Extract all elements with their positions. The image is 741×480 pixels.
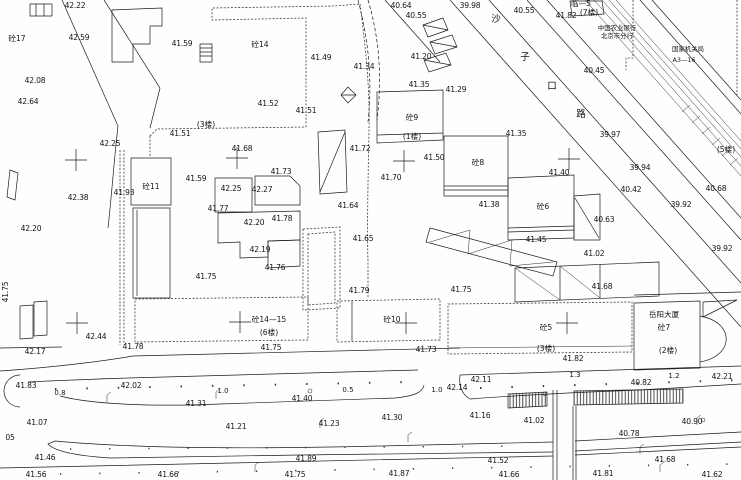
elevation-label: 40.82 <box>631 378 652 387</box>
elevation-label: 41.51 <box>170 129 191 138</box>
elevation-label: 41.52 <box>258 99 279 108</box>
elevation-label: 41.21 <box>226 422 247 431</box>
elevation-label: 42.25 <box>221 184 242 193</box>
building-u-dashed <box>303 227 340 310</box>
elevation-label: 41.75 <box>451 285 472 294</box>
elevation-label: 41.49 <box>311 53 332 62</box>
road-name-char: 口 <box>547 81 557 92</box>
elevation-label: 41.82 <box>563 354 584 363</box>
survey-map-canvas: 42.2242.5942.0842.6441.5941.4941.5241.51… <box>0 0 741 480</box>
elevation-labels: 42.2242.5942.0842.6441.5941.4941.5241.51… <box>5 1 732 479</box>
elevation-label: 41.50 <box>424 153 445 162</box>
elevation-label: 41.56 <box>26 470 47 479</box>
building-narrow <box>318 130 347 194</box>
road-name-chars: 沙子口路 <box>491 14 586 120</box>
elevation-label: 42.19 <box>250 245 271 254</box>
elevation-label: 39.92 <box>712 244 733 253</box>
elevation-label: 41.70 <box>381 173 402 182</box>
elevation-label: 41.75 <box>196 272 217 281</box>
compound-walls <box>120 4 369 345</box>
building-label: 砼14 <box>251 39 268 49</box>
elevation-label: 42.11 <box>471 375 492 384</box>
elevation-label: 41.77 <box>208 204 229 213</box>
elevation-label: 41.29 <box>446 85 467 94</box>
elevation-label: 41.35 <box>506 129 527 138</box>
building-label: 砼7 <box>658 322 671 332</box>
elevation-label: 40.90 <box>682 417 703 426</box>
rotated-labels: 41.75 <box>1 281 10 302</box>
road-name-char: 沙 <box>491 14 501 25</box>
elevation-label: 42.02 <box>121 381 142 390</box>
distance-label: 1.0 <box>431 386 442 394</box>
elevation-label: 41.65 <box>353 234 374 243</box>
rotated-elevation-label: 41.75 <box>1 281 10 302</box>
elevation-label: 41.73 <box>416 345 437 354</box>
elevation-label: 42.38 <box>68 193 89 202</box>
elevation-label: 42.44 <box>86 332 107 341</box>
building-label: 临—5 <box>571 0 591 8</box>
elevation-label: 41.72 <box>350 144 371 153</box>
elevation-label: 41.59 <box>186 174 207 183</box>
elevation-label: 41.46 <box>35 453 56 462</box>
elevation-label: 41.66 <box>499 470 520 479</box>
elevation-label: 41.76 <box>265 263 286 272</box>
elevation-label: 39.98 <box>460 1 481 10</box>
elevation-label: 42.20 <box>244 218 265 227</box>
elevation-label: 41.75 <box>285 470 306 479</box>
elevation-label: 41.07 <box>27 418 48 427</box>
survey-map: 42.2242.5942.0842.6441.5941.4941.5241.51… <box>0 0 741 480</box>
road-name-char: 路 <box>576 108 586 120</box>
building-label: (2楼) <box>659 345 677 355</box>
elevation-label: 42.21 <box>712 372 733 381</box>
elevation-label: 41.81 <box>593 469 614 478</box>
place-label: 中国农业银行 <box>598 23 637 32</box>
elevation-label: 42.08 <box>25 76 46 85</box>
elevation-label: 41.35 <box>409 80 430 89</box>
building-label: 岳阳大厦 <box>649 309 680 319</box>
elevation-label: 05 <box>5 433 15 442</box>
distance-label: 1.0 <box>217 387 228 395</box>
elevation-label: 41.31 <box>186 399 207 408</box>
elevation-label: 40.63 <box>594 215 615 224</box>
elevation-label: 39.94 <box>630 163 651 172</box>
elevation-label: 41.02 <box>524 416 545 425</box>
building-label: (6楼) <box>260 327 278 337</box>
elevation-label: 41.16 <box>470 411 491 420</box>
elevation-label: 41.23 <box>319 419 340 428</box>
building-label: 砼9 <box>406 112 419 122</box>
elevation-label: 41.82 <box>556 11 577 20</box>
building-11 <box>131 158 171 298</box>
elevation-label: 41.75 <box>261 343 282 352</box>
elevation-label: 41.79 <box>349 286 370 295</box>
elevation-label: 42.22 <box>65 1 86 10</box>
elevation-label: 40.55 <box>406 11 427 20</box>
elevation-label: 41.20 <box>411 52 432 61</box>
elevation-label: 42.14 <box>447 383 468 392</box>
elevation-label: 40.42 <box>621 185 642 194</box>
building-label: 砼10 <box>383 314 400 324</box>
elevation-label: 40.55 <box>514 6 535 15</box>
place-labels: 中国农业银行北京市分行国家机关局A3—16 <box>598 23 704 64</box>
place-label: 国家机关局 <box>672 44 704 53</box>
elevation-label: 42.27 <box>252 185 273 194</box>
road-name-char: 子 <box>520 52 530 63</box>
elevation-label: 41.78 <box>272 214 293 223</box>
elevation-label: 41.40 <box>292 394 313 403</box>
elevation-label: 40.64 <box>391 1 412 10</box>
building-label: (7楼) <box>580 7 598 17</box>
building-label: 砼5 <box>540 322 553 332</box>
elevation-label: 41.64 <box>338 201 359 210</box>
building-label: 砼6 <box>537 201 550 211</box>
elevation-label: 41.59 <box>172 39 193 48</box>
elevation-label: 40.68 <box>706 184 727 193</box>
elevation-label: 42.59 <box>69 33 90 42</box>
elevation-label: 41.93 <box>114 188 135 197</box>
elevation-label: 41.66 <box>158 470 179 479</box>
elevation-label: 40.45 <box>584 66 605 75</box>
elevation-label: 41.68 <box>592 282 613 291</box>
elevation-label: 39.97 <box>600 130 621 139</box>
elevation-label: 42.64 <box>18 97 39 106</box>
elevation-label: 41.68 <box>232 144 253 153</box>
elevation-label: 41.78 <box>123 342 144 351</box>
building-label: 砼17 <box>8 33 25 43</box>
elevation-label: 41.83 <box>16 381 37 390</box>
building-6 <box>508 175 600 240</box>
elevation-label: 41.45 <box>526 235 547 244</box>
distance-label: 1.3 <box>569 371 580 379</box>
survey-crosses <box>65 147 580 334</box>
place-label: 北京市分行 <box>601 31 634 40</box>
building-label: (3楼) <box>197 119 215 129</box>
distance-label: 0.5 <box>342 386 353 394</box>
building-7 <box>634 292 741 370</box>
elevation-label: 42.17 <box>25 347 46 356</box>
braced-strip-b <box>515 262 659 302</box>
elevation-label: 41.38 <box>479 200 500 209</box>
elevation-label: 40.78 <box>619 429 640 438</box>
elevation-label: 42.20 <box>21 224 42 233</box>
elevation-label: 42.25 <box>100 139 121 148</box>
stairs-icon <box>200 44 212 62</box>
distance-label: 0.8 <box>54 389 65 397</box>
elevation-label: 41.30 <box>382 413 403 422</box>
elevation-label: 39.92 <box>671 200 692 209</box>
building-label: 砼8 <box>472 157 485 167</box>
roads-south <box>0 348 741 480</box>
elevation-label: 41.02 <box>584 249 605 258</box>
elevation-label: 41.73 <box>271 167 292 176</box>
distance-label: 1.2 <box>668 372 679 380</box>
elevation-label: 41.62 <box>702 470 723 479</box>
hatched-strips <box>508 389 683 408</box>
elevation-label: 41.87 <box>389 469 410 478</box>
elevation-label: 41.68 <box>655 455 676 464</box>
elevation-label: 41.34 <box>354 62 375 71</box>
elevation-label: 41.52 <box>488 456 509 465</box>
building-label: 砼14—15 <box>252 314 287 324</box>
place-label: A3—16 <box>673 56 696 64</box>
elevation-label: 41.40 <box>549 168 570 177</box>
building-label: (1楼) <box>403 131 421 141</box>
building-label: 砼11 <box>142 181 159 191</box>
building-label: (5楼) <box>717 144 735 154</box>
elevation-label: 41.51 <box>296 106 317 115</box>
elevation-label: 41.89 <box>296 454 317 463</box>
building-label: (3楼) <box>537 343 555 353</box>
